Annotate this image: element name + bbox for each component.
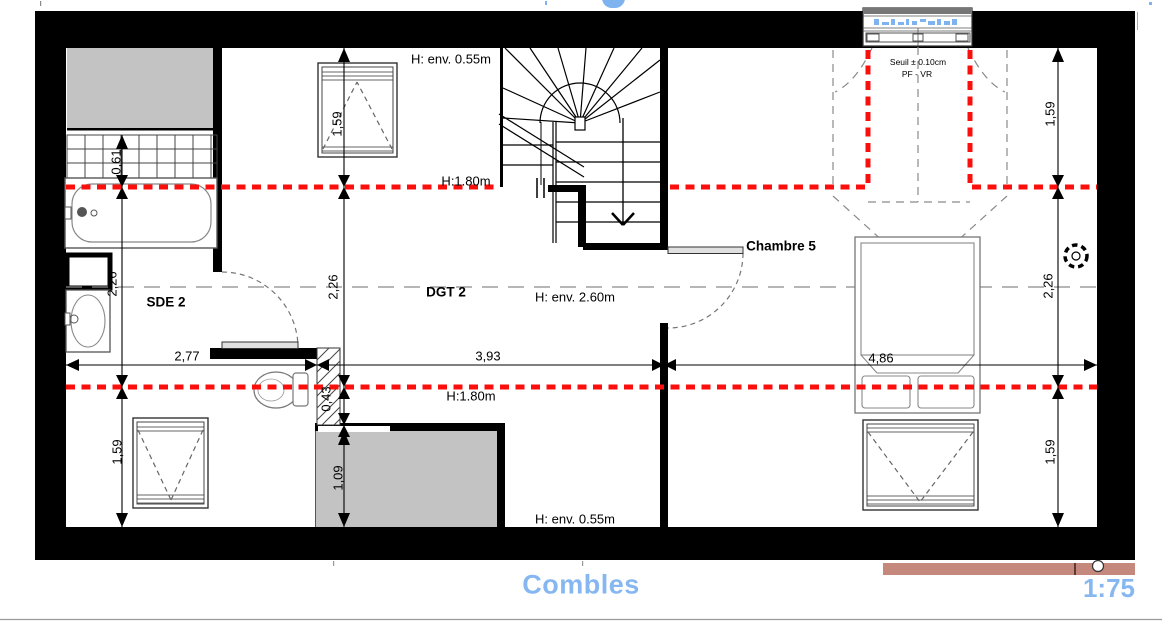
roof-window-bottom-left	[133, 418, 208, 508]
height-label-top: H: env. 0.55m	[411, 53, 491, 66]
wall-storage-east	[497, 423, 505, 527]
dormer-window	[863, 8, 972, 46]
toilet	[254, 372, 308, 408]
wall-chambre5-west	[660, 323, 668, 527]
room-label-dgt2: DGT 2	[426, 285, 466, 299]
wall-bottom	[35, 527, 1135, 560]
room-label-chambre5: Chambre 5	[746, 239, 816, 253]
dim-226-mid: 2,26	[327, 274, 340, 299]
dim-226-right: 2,26	[1042, 273, 1055, 298]
tile-grid	[67, 135, 217, 178]
clipped-title-fragment	[545, 1, 547, 5]
height-label-180-bottom: H:1.80m	[446, 390, 495, 403]
terrace-post-icon	[1093, 561, 1104, 572]
wall-stair-southwest	[578, 185, 586, 247]
dim-486: 4,86	[868, 352, 893, 365]
wall-stair-south	[583, 243, 660, 250]
door-leaf	[222, 342, 298, 349]
dim-109: 1,09	[332, 465, 345, 490]
dim-043: 0,43	[320, 386, 333, 411]
tub-faucet-icon	[65, 207, 71, 219]
washbasin	[65, 290, 110, 352]
wall-right	[1097, 11, 1135, 560]
clipped-title-fragment	[1149, 2, 1152, 5]
door-leaf	[668, 247, 743, 254]
sheet-scale: 1:75	[1083, 575, 1135, 601]
room-label-sde2: SDE 2	[146, 295, 185, 309]
floor-plan-page: SDE 2 DGT 2 Chambre 5 H: env. 0.55m H:1.…	[0, 0, 1162, 625]
vent-rosette-icon	[1065, 245, 1087, 267]
dim-393: 3,93	[475, 350, 500, 363]
dim-061: 0,61	[110, 149, 123, 174]
door-swing-arc	[668, 253, 743, 328]
seuil-annotation: Seuil ± 0.10cm	[890, 58, 946, 67]
door-sde2	[222, 272, 298, 349]
wall-sde2-south	[210, 348, 317, 359]
storage-opening	[318, 426, 390, 432]
wall-left	[35, 11, 66, 560]
tub-drain-icon	[77, 207, 87, 217]
sheet-title: Combles	[522, 572, 640, 599]
roof-projection-lines	[833, 47, 1007, 268]
dim-226-left: 2,26	[106, 271, 119, 296]
pf-vr-annotation: PF - VR	[902, 70, 932, 79]
roof-window-top-left	[318, 63, 397, 157]
height-label-260: H: env. 2.60m	[535, 291, 615, 304]
dim-159-top-right: 1,59	[1044, 101, 1057, 126]
dim-159-bottom-right: 1,59	[1044, 439, 1057, 464]
floor-plan-canvas	[0, 0, 1162, 625]
wall-stair-west-thin	[500, 48, 503, 187]
dim-159-bottom-left: 1,59	[111, 439, 124, 464]
height-label-bottom: H: env. 0.55m	[535, 513, 615, 526]
roof-window-bottom-right	[863, 420, 978, 510]
wall-stair-east	[660, 48, 668, 250]
door-swing-arc	[222, 272, 298, 348]
stair-newel	[575, 117, 585, 130]
height-label-180-left: H:1.80m	[441, 175, 490, 188]
dim-277: 2,77	[174, 350, 199, 363]
dim-159-top-mid: 1,59	[331, 111, 344, 136]
pillow	[862, 376, 910, 408]
pillow	[918, 376, 974, 408]
low-ceiling-zone-topleft	[67, 48, 213, 128]
